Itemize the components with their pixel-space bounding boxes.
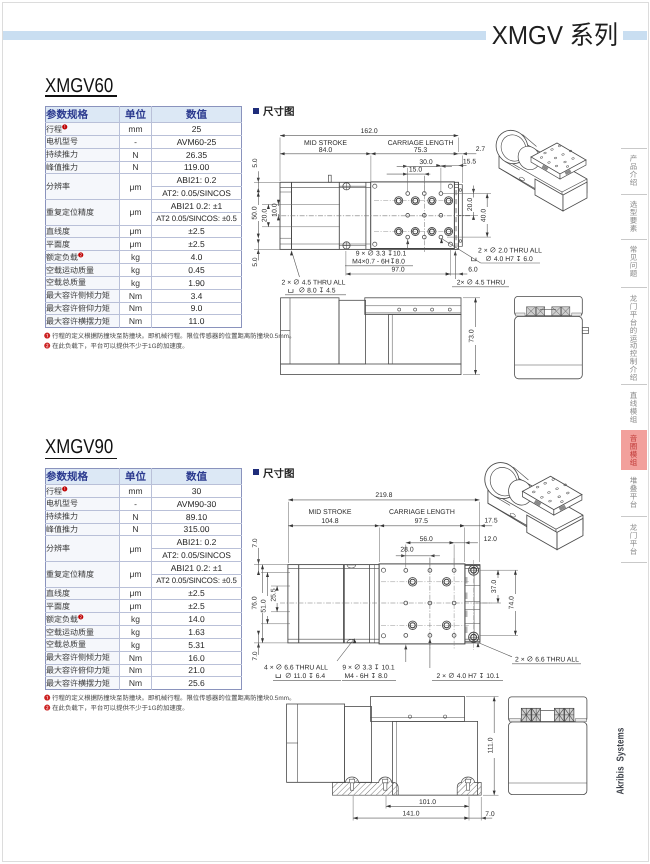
svg-text:M4×0.7 - 6H↧8.0: M4×0.7 - 6H↧8.0 [352, 259, 405, 266]
svg-text:111.0: 111.0 [487, 737, 494, 753]
svg-text:40.0: 40.0 [481, 209, 488, 222]
svg-text:CARRIAGE LENGTH: CARRIAGE LENGTH [388, 140, 454, 147]
svg-text:CARRIAGE LENGTH: CARRIAGE LENGTH [389, 509, 455, 516]
svg-text:56.0: 56.0 [420, 536, 433, 543]
svg-text:20.0: 20.0 [262, 209, 269, 222]
svg-text:25.5: 25.5 [270, 588, 277, 601]
svg-text:2 × ∅ 4.5 THRU ALL: 2 × ∅ 4.5 THRU ALL [282, 279, 346, 287]
svg-text:7.0: 7.0 [485, 811, 495, 818]
svg-text:73.0: 73.0 [469, 329, 476, 342]
svg-text:50.0: 50.0 [252, 206, 259, 219]
svg-text:17.5: 17.5 [484, 518, 497, 525]
svg-text:141.0: 141.0 [403, 811, 420, 818]
svg-text:5.0: 5.0 [252, 158, 259, 167]
svg-text:MID STROKE: MID STROKE [304, 140, 347, 147]
svg-text:2 × ∅ 6.6 THRU ALL: 2 × ∅ 6.6 THRU ALL [515, 656, 579, 664]
svg-text:15.5: 15.5 [463, 158, 476, 165]
svg-text:2 × ∅ 4.0 H7 ↧ 10.1: 2 × ∅ 4.0 H7 ↧ 10.1 [437, 672, 500, 680]
svg-text:7.0: 7.0 [252, 651, 259, 660]
svg-text:219.8: 219.8 [375, 492, 392, 499]
svg-text:10.0: 10.0 [272, 203, 279, 216]
svg-text:12.0: 12.0 [484, 536, 497, 543]
svg-text:2 × ∅ 2.0 THRU ALL: 2 × ∅ 2.0 THRU ALL [478, 247, 542, 255]
svg-text:9 × ∅ 3.3 ↧ 10.1: 9 × ∅ 3.3 ↧ 10.1 [342, 663, 395, 671]
svg-text:162.0: 162.0 [361, 128, 378, 135]
svg-text:∅ 4.0 H7 ↧ 6.0: ∅ 4.0 H7 ↧ 6.0 [485, 255, 533, 263]
svg-text:75.3: 75.3 [414, 147, 428, 154]
svg-text:37.0: 37.0 [491, 580, 498, 593]
svg-text:28.0: 28.0 [400, 547, 413, 554]
svg-text:∅ 8.0 ↧ 4.5: ∅ 8.0 ↧ 4.5 [298, 287, 335, 295]
svg-text:76.0: 76.0 [251, 596, 258, 609]
svg-text:101.0: 101.0 [419, 799, 436, 806]
svg-text:6.0: 6.0 [468, 267, 478, 274]
svg-text:2.7: 2.7 [476, 146, 486, 153]
svg-text:∅ 11.0 ↧ 6.4: ∅ 11.0 ↧ 6.4 [285, 672, 326, 680]
svg-text:7.0: 7.0 [252, 538, 259, 547]
svg-text:2× ∅ 4.5 THRU: 2× ∅ 4.5 THRU [457, 279, 506, 287]
svg-text:15.0: 15.0 [409, 167, 422, 174]
svg-text:20.0: 20.0 [467, 198, 474, 211]
svg-text:30.0: 30.0 [419, 159, 432, 166]
svg-text:51.0: 51.0 [261, 599, 268, 612]
svg-text:M4 - 6H ↧ 8.0: M4 - 6H ↧ 8.0 [344, 673, 387, 680]
svg-text:97.0: 97.0 [391, 267, 404, 274]
svg-text:MID STROKE: MID STROKE [309, 509, 352, 516]
svg-text:4 × ∅ 6.6 THRU ALL: 4 × ∅ 6.6 THRU ALL [264, 663, 328, 671]
svg-text:104.8: 104.8 [321, 518, 338, 525]
svg-text:74.0: 74.0 [509, 596, 516, 609]
svg-text:9 × ∅ 3.3 ↧10.1: 9 × ∅ 3.3 ↧10.1 [356, 250, 407, 258]
svg-text:97.5: 97.5 [415, 518, 429, 525]
svg-text:84.0: 84.0 [319, 147, 333, 154]
